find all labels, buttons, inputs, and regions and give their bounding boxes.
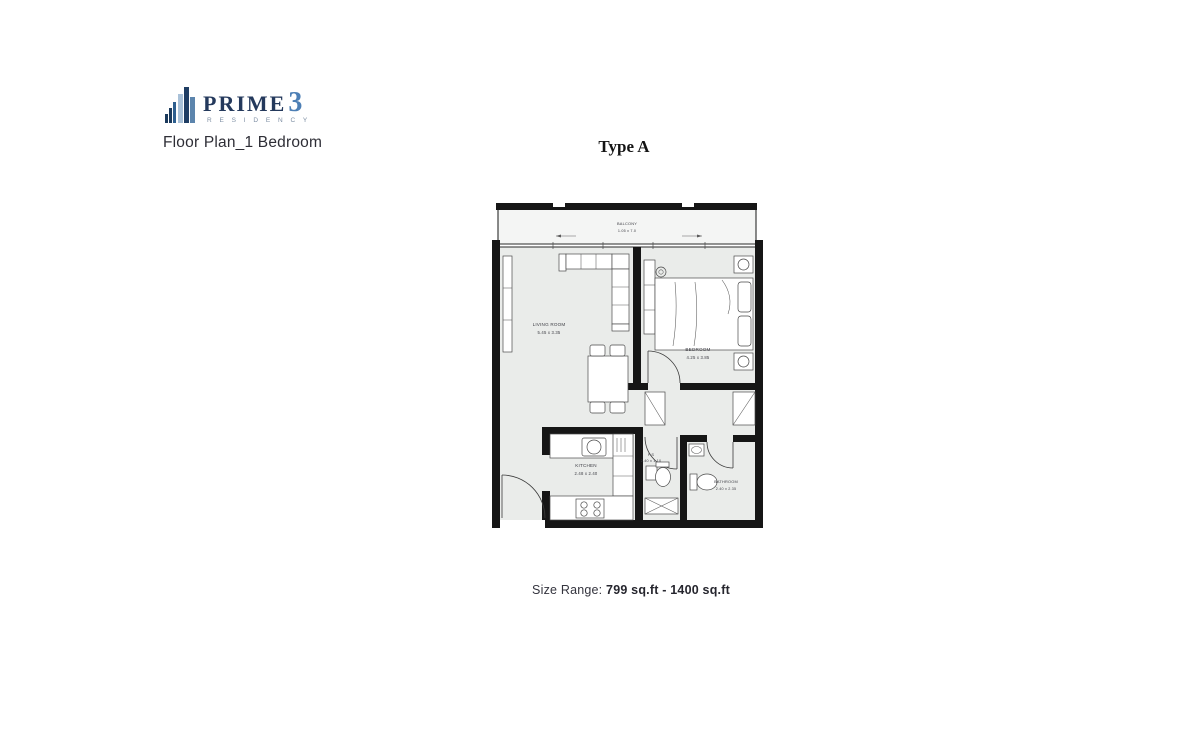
brand-name: PRIME bbox=[203, 93, 286, 115]
building-bars-icon bbox=[163, 86, 197, 124]
pillow bbox=[738, 282, 751, 312]
hall-wardrobe bbox=[733, 392, 755, 425]
bed bbox=[655, 278, 753, 350]
floor-plan-svg: BALCONY 1.05 x 7.0 LIVING ROOM 5.45 x 3.… bbox=[488, 198, 765, 532]
size-range-label: Size Range: bbox=[532, 583, 602, 597]
brand-number: 3 bbox=[288, 92, 302, 114]
brand-logo: PRIME 3 R E S I D E N C Y Floor Plan_1 B… bbox=[163, 86, 322, 152]
hall-wardrobe bbox=[645, 392, 665, 425]
bedroom-dims: 4.25 x 3.85 bbox=[687, 355, 710, 360]
type-title: Type A bbox=[598, 137, 649, 157]
tv-unit bbox=[503, 256, 512, 352]
dining-chair bbox=[590, 402, 605, 413]
dining-chair bbox=[590, 345, 605, 356]
dining-chair bbox=[610, 345, 625, 356]
balcony-floor bbox=[498, 210, 756, 244]
bedroom-label: BEDROOM bbox=[685, 347, 710, 352]
floor-plan-subtitle: Floor Plan_1 Bedroom bbox=[163, 134, 322, 152]
bathroom-dims: 2.40 x 2.35 bbox=[716, 487, 736, 491]
stove bbox=[576, 499, 604, 518]
living-room-dims: 5.45 x 3.35 bbox=[538, 330, 561, 335]
storage-box bbox=[645, 498, 678, 514]
pillow bbox=[738, 316, 751, 346]
size-range: Size Range: 799 sq.ft - 1400 sq.ft bbox=[532, 583, 730, 597]
page: { "header": { "logo": { "brand": "PRIME"… bbox=[0, 0, 1200, 742]
floor-plan: BALCONY 1.05 x 7.0 LIVING ROOM 5.45 x 3.… bbox=[488, 198, 765, 532]
nightstand bbox=[734, 353, 753, 370]
kitchen-dims: 2.48 x 2.40 bbox=[575, 471, 598, 476]
kitchen-label: KITCHEN bbox=[575, 463, 597, 468]
dining-chair bbox=[610, 402, 625, 413]
bedroom-wardrobe bbox=[644, 260, 655, 334]
living-room-label: LIVING ROOM bbox=[533, 322, 566, 327]
balcony-dims: 1.05 x 7.0 bbox=[618, 229, 636, 233]
nightstand bbox=[734, 256, 753, 273]
brand-subtitle: R E S I D E N C Y bbox=[207, 117, 310, 124]
ps-label: P.S bbox=[648, 452, 655, 457]
balcony-label: BALCONY bbox=[617, 221, 637, 226]
kitchen-sink bbox=[582, 438, 606, 456]
bathroom-sink bbox=[689, 444, 704, 456]
ps-toilet bbox=[656, 462, 671, 487]
bathroom-toilet bbox=[690, 474, 717, 490]
bathroom-label: BATHROOM bbox=[714, 479, 738, 484]
size-range-value: 799 sq.ft - 1400 sq.ft bbox=[606, 583, 730, 597]
ps-dims: 2.40 x 1.10 bbox=[641, 459, 661, 463]
